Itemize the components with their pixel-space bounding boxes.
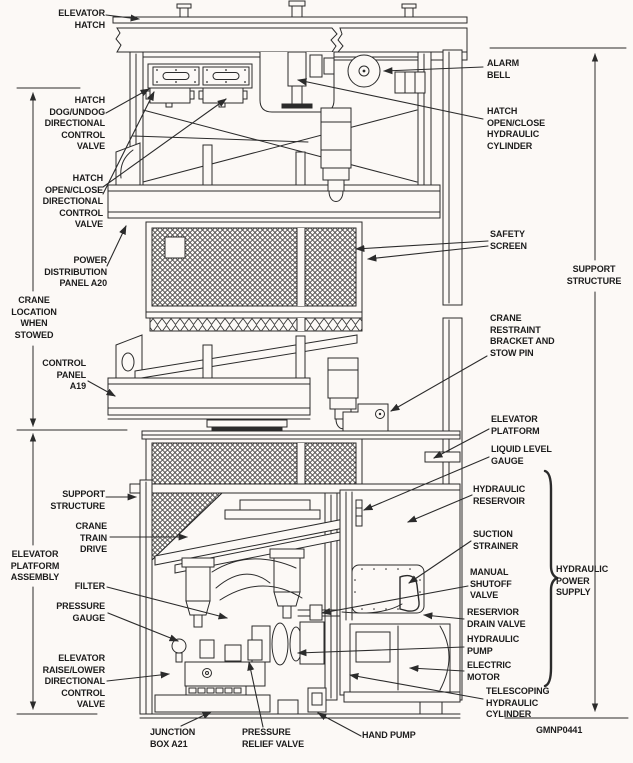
label-liquid-level-gauge: LIQUID LEVEL GAUGE	[491, 444, 573, 467]
label-hydraulic-pump: HYDRAULIC PUMP	[467, 634, 537, 657]
hatch-valve-plates	[146, 64, 252, 107]
label-support-structure-right: SUPPORT STRUCTURE	[556, 264, 632, 287]
safety-screen-drawing	[146, 222, 362, 331]
label-reservior-drain-valve: RESERVIOR DRAIN VALVE	[467, 607, 555, 630]
label-safety-screen: SAFETY SCREEN	[490, 229, 550, 252]
label-hydraulic-power-supply: HYDRAULIC POWER SUPPLY	[556, 564, 628, 599]
label-elevator-platform: ELEVATOR PLATFORM	[491, 414, 561, 437]
label-crane-restraint-bracket: CRANE RESTRAINT BRACKET AND STOW PIN	[490, 313, 578, 359]
label-pressure-gauge: PRESSURE GAUGE	[28, 601, 105, 624]
hatch-cylinder-drawing	[260, 52, 334, 112]
label-crane-location-when-stowed: CRANE LOCATION WHEN STOWED	[3, 295, 65, 341]
label-elevator-hatch: ELEVATOR HATCH	[25, 8, 105, 31]
label-hydraulic-reservoir: HYDRAULIC RESERVOIR	[473, 484, 553, 507]
platform-a20	[108, 143, 440, 218]
label-power-distribution-panel: POWER DISTRIBUTION PANEL A20	[10, 255, 107, 290]
label-telescoping-cylinder: TELESCOPING HYDRAULIC CYLINDER	[486, 686, 578, 721]
label-electric-motor: ELECTRIC MOTOR	[467, 660, 529, 683]
label-filter: FILTER	[45, 581, 105, 593]
label-hatch-dog-undog-valve: HATCH DOG/UNDOG DIRECTIONAL CONTROL VALV…	[18, 95, 105, 153]
label-elevator-platform-assembly: ELEVATOR PLATFORM ASSEMBLY	[4, 549, 66, 584]
label-hand-pump: HAND PUMP	[362, 730, 437, 742]
label-hatch-open-close-valve: HATCH OPEN/CLOSE DIRECTIONAL CONTROL VAL…	[13, 173, 103, 231]
label-pressure-relief-valve: PRESSURE RELIEF VALVE	[242, 727, 332, 750]
technical-diagram: ELEVATOR HATCH HATCH DOG/UNDOG DIRECTION…	[0, 0, 633, 763]
label-hatch-hydraulic-cylinder: HATCH OPEN/CLOSE HYDRAULIC CYLINDER	[487, 106, 567, 152]
label-support-structure-left: SUPPORT STRUCTURE	[28, 489, 105, 512]
label-elevator-raise-lower-valve: ELEVATOR RAISE/LOWER DIRECTIONAL CONTROL…	[10, 653, 105, 711]
label-manual-shutoff-valve: MANUAL SHUTOFF VALVE	[470, 567, 532, 602]
figure-code: GMNP0441	[536, 725, 598, 737]
elevator-hatch-drawing	[113, 1, 467, 60]
label-junction-box-a21: JUNCTION BOX A21	[150, 727, 222, 750]
alarm-bell-drawing	[348, 55, 425, 93]
label-control-panel-a19: CONTROL PANEL A19	[20, 358, 86, 393]
label-suction-strainer: SUCTION STRAINER	[473, 529, 543, 552]
label-alarm-bell: ALARM BELL	[487, 58, 542, 81]
